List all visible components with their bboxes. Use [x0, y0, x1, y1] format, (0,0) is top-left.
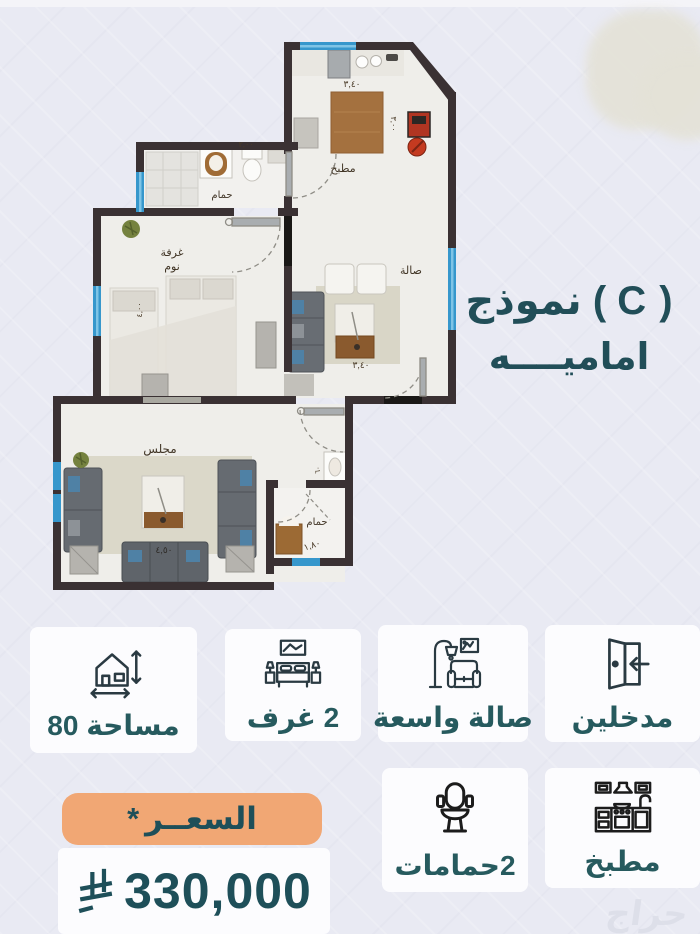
house-measure-icon [83, 639, 145, 701]
feature-card-rooms: 2 غرف [225, 629, 361, 741]
feature-label-hall: صالة واسعة [373, 701, 533, 734]
price-card: 330,000 [58, 848, 330, 934]
dim-label: ٣,٤٠ [343, 79, 360, 89]
feature-label-area: مساحة 80 [47, 709, 179, 742]
dim-label: ٤,٥٠ [155, 545, 172, 555]
bedroom-icon [263, 637, 323, 693]
model-title: نموذج ( C ) [446, 276, 692, 326]
price-note-mark: * [127, 801, 139, 837]
flyer: مطبخ صالة حمام غرفة نوم مجلس حمام ٣,٤٠ ٣… [0, 0, 700, 934]
model-subtitle: اماميــــه [446, 334, 692, 380]
door-entry-icon [592, 633, 654, 693]
feature-label-bathrooms: 2حمامات [394, 849, 515, 882]
feature-card-bathrooms: 2حمامات [382, 768, 528, 892]
model-title-block: نموذج ( C ) اماميــــه [446, 276, 692, 380]
feature-card-entrances: مدخلين [545, 625, 700, 742]
kitchen-icon [590, 779, 656, 837]
feature-card-kitchen: مطبخ [545, 768, 700, 888]
feature-label-rooms: 2 غرف [247, 701, 339, 734]
dim-label: ٤,٠٠ [135, 302, 144, 317]
room-label-hall: صالة [400, 265, 422, 277]
dim-label: ٦٠ [315, 466, 322, 474]
feature-card-area: مساحة 80 [30, 627, 197, 753]
feature-label-kitchen: مطبخ [584, 845, 660, 878]
feature-card-hall: صالة واسعة [378, 625, 528, 742]
room-label-majlis: مجلس [143, 442, 176, 457]
dim-label: ٢,٠٠ [238, 140, 253, 149]
watermark: حراج [603, 894, 690, 934]
feature-label-entrances: مدخلين [572, 701, 674, 734]
room-label-bedroom: غرفة [161, 247, 184, 259]
room-label-kitchen: مطبخ [330, 163, 355, 175]
price-pill: * السعــر [62, 793, 322, 845]
room-label-bath1: حمام [211, 190, 232, 201]
dim-label: ٣,٤٠ [352, 360, 369, 370]
toilet-icon [427, 779, 483, 841]
room-label-bedroom: نوم [164, 261, 180, 273]
sofa-lamp-icon [421, 633, 485, 693]
price-label: السعــر [145, 801, 257, 837]
price-amount: 330,000 [124, 862, 312, 920]
saudi-riyal-icon [76, 866, 114, 916]
dim-label: ٣,٠٠ [389, 116, 398, 131]
room-label-bath2: حمام [306, 517, 327, 528]
